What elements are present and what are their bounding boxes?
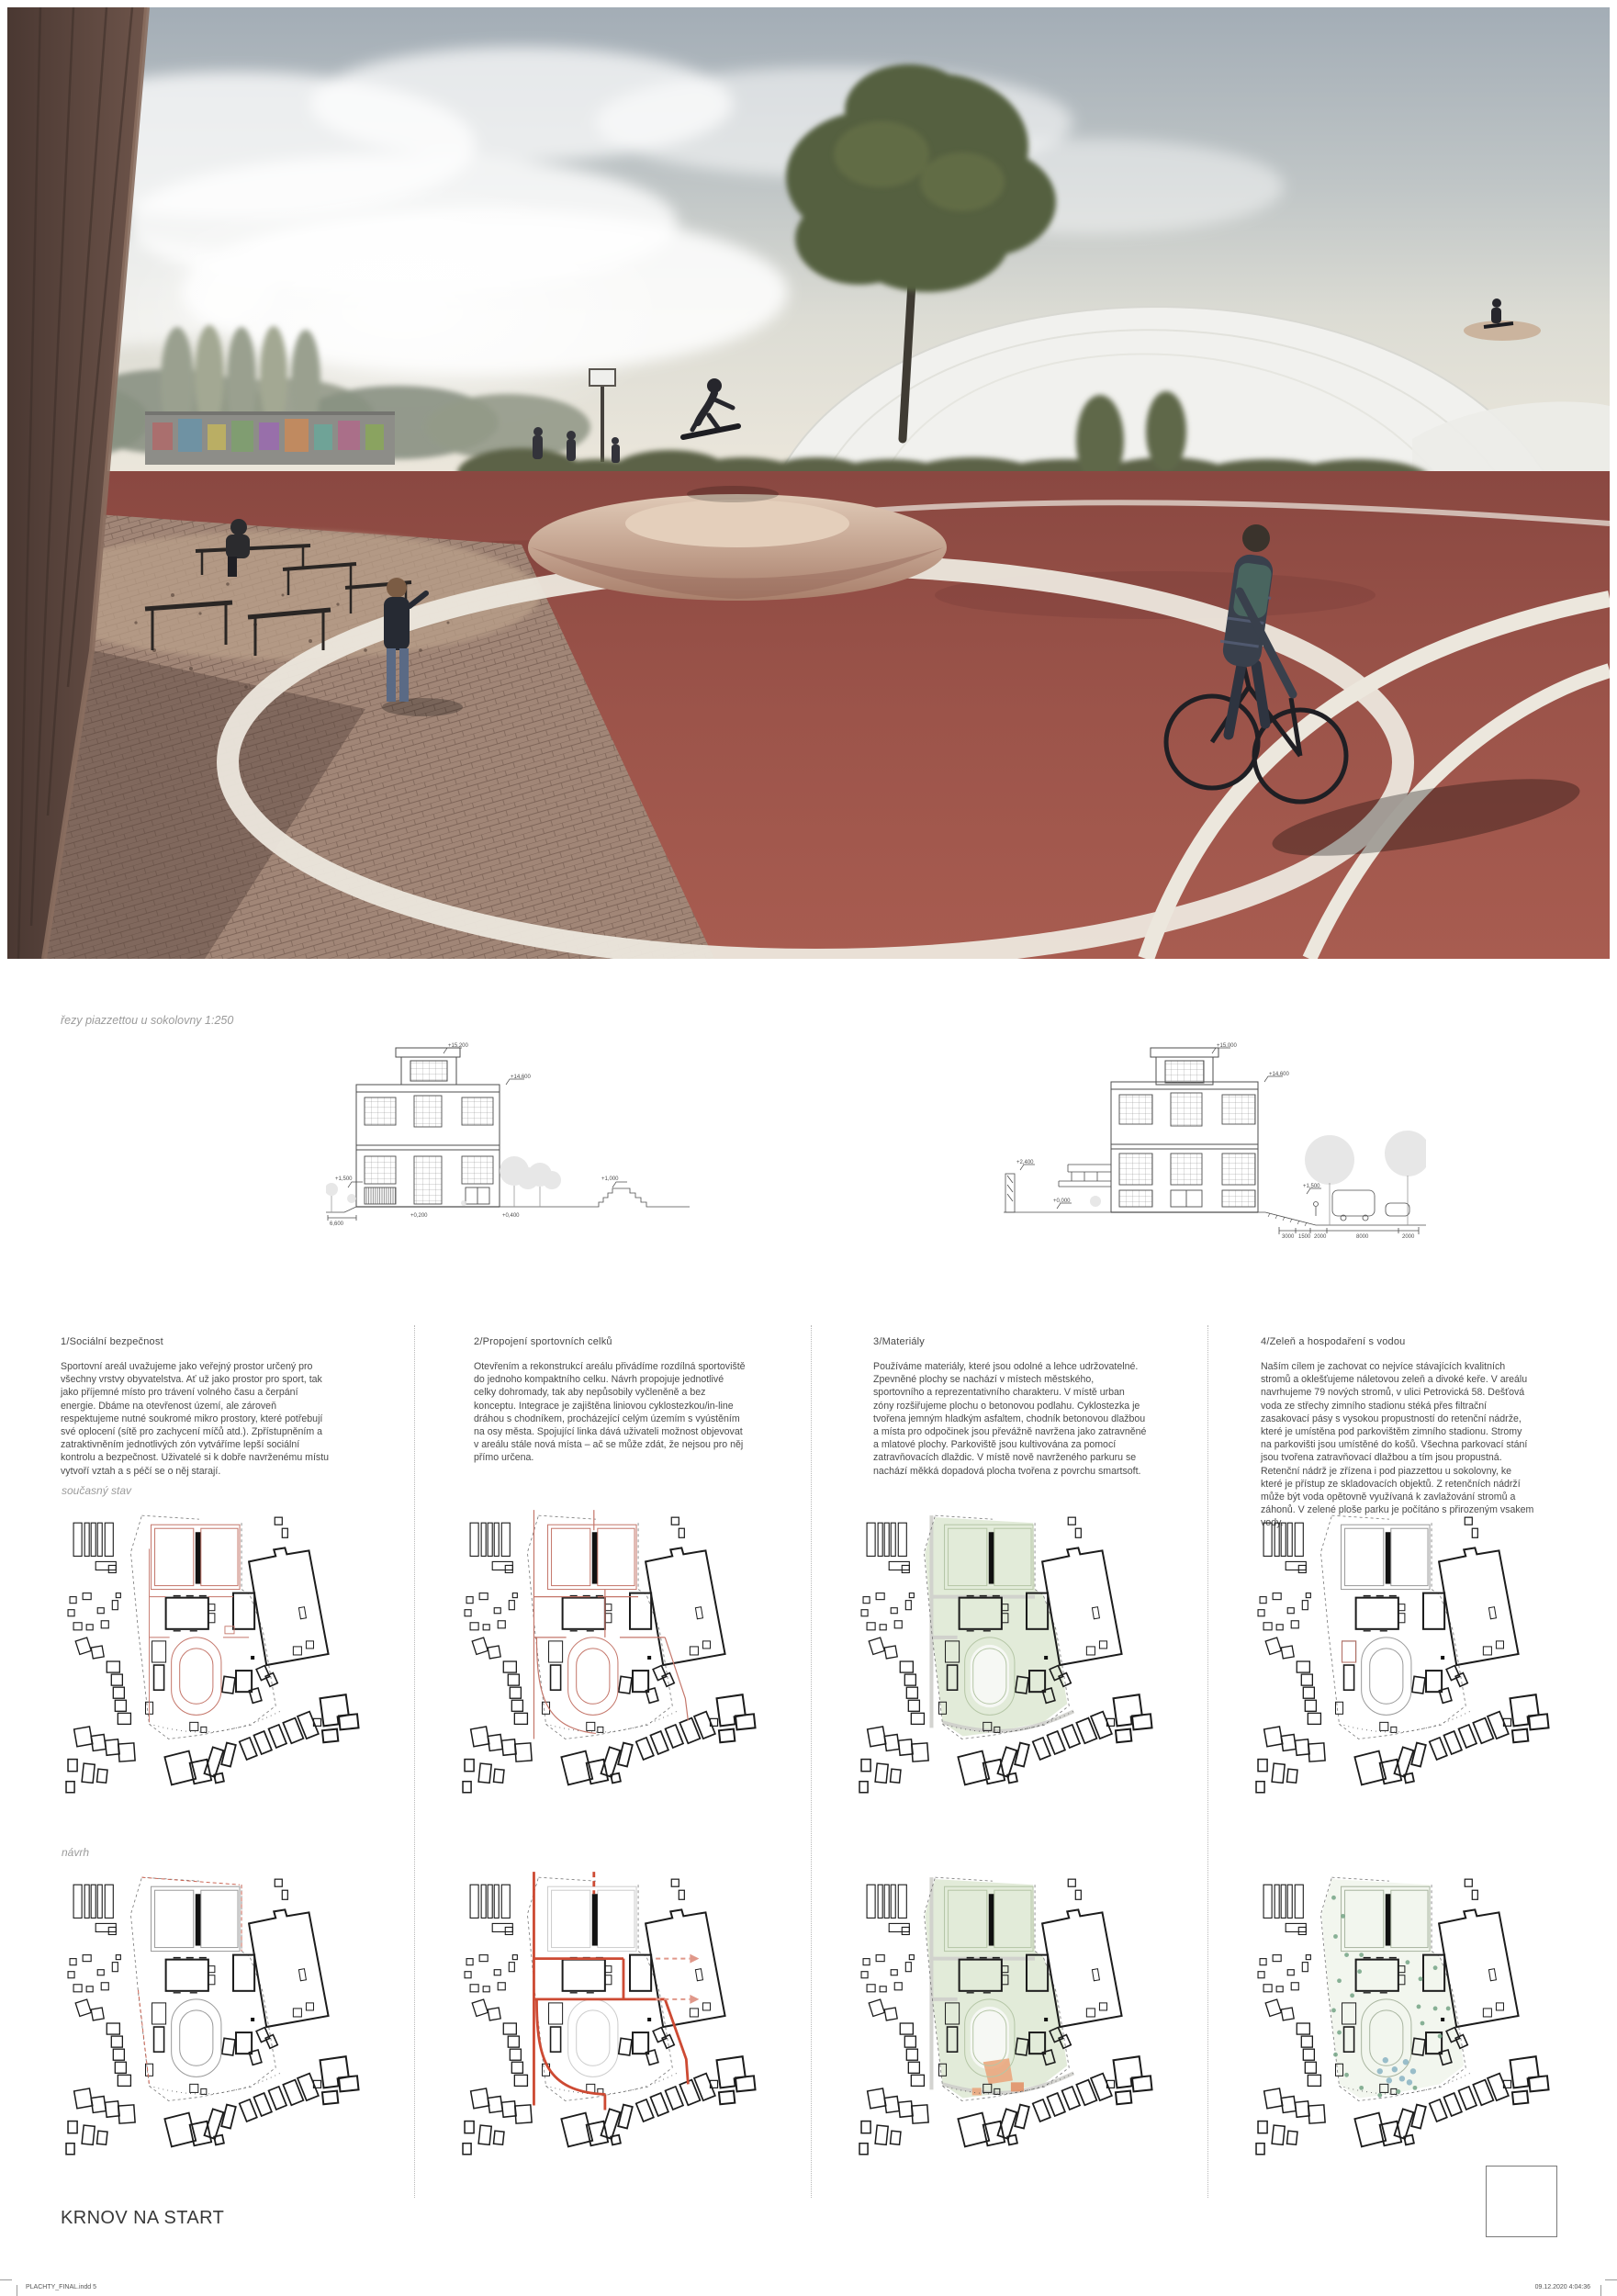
elev2-dim-3: 2000 [1314,1234,1327,1240]
elev2-mark-left: +2,400 [1016,1160,1034,1165]
elevation-drawing-1: +15,200 +14,600 +1,500 +1,000 +0,200 +0,… [326,1041,693,1229]
graffiti-wall [145,411,395,465]
elev2-dim-2: 1500 [1298,1234,1311,1240]
elev2-mark-top: +15,000 [1217,1043,1238,1049]
text-column-3: 3/Materiály Používáme materiály, které j… [873,1336,1147,1478]
elev1-mark-hill: +1,000 [601,1176,619,1182]
column-heading-4: 4/Zeleň a hospodaření s vodou [1261,1336,1534,1347]
row-label-current-state: současný stav [62,1484,131,1497]
crop-mark-left-vertical [17,2285,17,2296]
site-plan-proposal-greenery [1251,1870,1592,2175]
elev2-mark-ground: +0,000 [1053,1199,1071,1204]
elev2-dim-5: 2000 [1402,1234,1415,1240]
elev2-dim-4: 8000 [1356,1234,1369,1240]
crop-mark-right-horizontal [1605,2279,1617,2280]
site-plan-current-connections [457,1508,799,1813]
row-label-proposal: návrh [62,1846,89,1859]
text-column-4: 4/Zeleň a hospodaření s vodou Naším cíle… [1261,1336,1534,1529]
logo-placeholder-box [1486,2166,1557,2237]
elev1-mark-top: +15,200 [448,1043,469,1049]
column-heading-3: 3/Materiály [873,1336,1147,1347]
site-plan-proposal-connections [457,1870,799,2175]
elev1-dim-left: 6,600 [330,1221,344,1227]
column-body-3: Používáme materiály, které jsou odolné a… [873,1360,1147,1478]
elev1-mark-left: +1,500 [335,1176,353,1182]
site-plan-current-greenery [1251,1508,1592,1813]
poster-title: KRNOV NA START [61,2208,224,2229]
elev1-mark-base-center: +0,200 [410,1213,428,1219]
footer-timestamp: 09.12.2020 4:04:36 [1499,2284,1590,2290]
crop-mark-left-horizontal [0,2279,12,2280]
column-body-4: Naším cílem je zachovat co nejvíce stáva… [1261,1360,1534,1529]
elev2-dim-1: 3000 [1282,1234,1295,1240]
skatepark-mound [528,494,947,601]
text-column-1: 1/Sociální bezpečnost Sportovní areál uv… [61,1336,334,1478]
column-heading-1: 1/Sociální bezpečnost [61,1336,334,1347]
site-plan-current-materials [854,1508,1196,1813]
elev2-mark-slope: +1,500 [1303,1184,1320,1189]
crop-mark-right-vertical [1600,2285,1601,2296]
elev1-mark-cornice: +14,600 [511,1075,532,1080]
column-divider-3 [1207,1325,1208,2198]
footer-file-name: PLACHTY_FINAL.indd 5 [26,2284,96,2290]
elevation-drawing-2: +15,000 +14,600 +2,400 +0,000 +1,500 300… [1004,1036,1426,1252]
column-heading-2: 2/Propojení sportovních celků [474,1336,747,1347]
column-divider-2 [811,1325,812,2198]
section-scale-label: řezy piazzettou u sokolovny 1:250 [61,1014,233,1027]
poster-page: řezy piazzettou u sokolovny 1:250 [0,0,1617,2296]
hero-rendering [7,7,1610,959]
column-body-2: Otevřením a rekonstrukcí areálu přivádím… [474,1360,747,1465]
site-plan-current-social [61,1508,402,1813]
site-plan-proposal-materials [854,1870,1196,2175]
text-column-2: 2/Propojení sportovních celků Otevřením … [474,1336,747,1465]
elev1-mark-base-right: +0,400 [502,1213,520,1219]
site-plan-proposal-social [61,1870,402,2175]
column-body-1: Sportovní areál uvažujeme jako veřejný p… [61,1360,334,1478]
column-divider-1 [414,1325,415,2198]
elev2-mark-cornice: +14,600 [1269,1072,1290,1077]
